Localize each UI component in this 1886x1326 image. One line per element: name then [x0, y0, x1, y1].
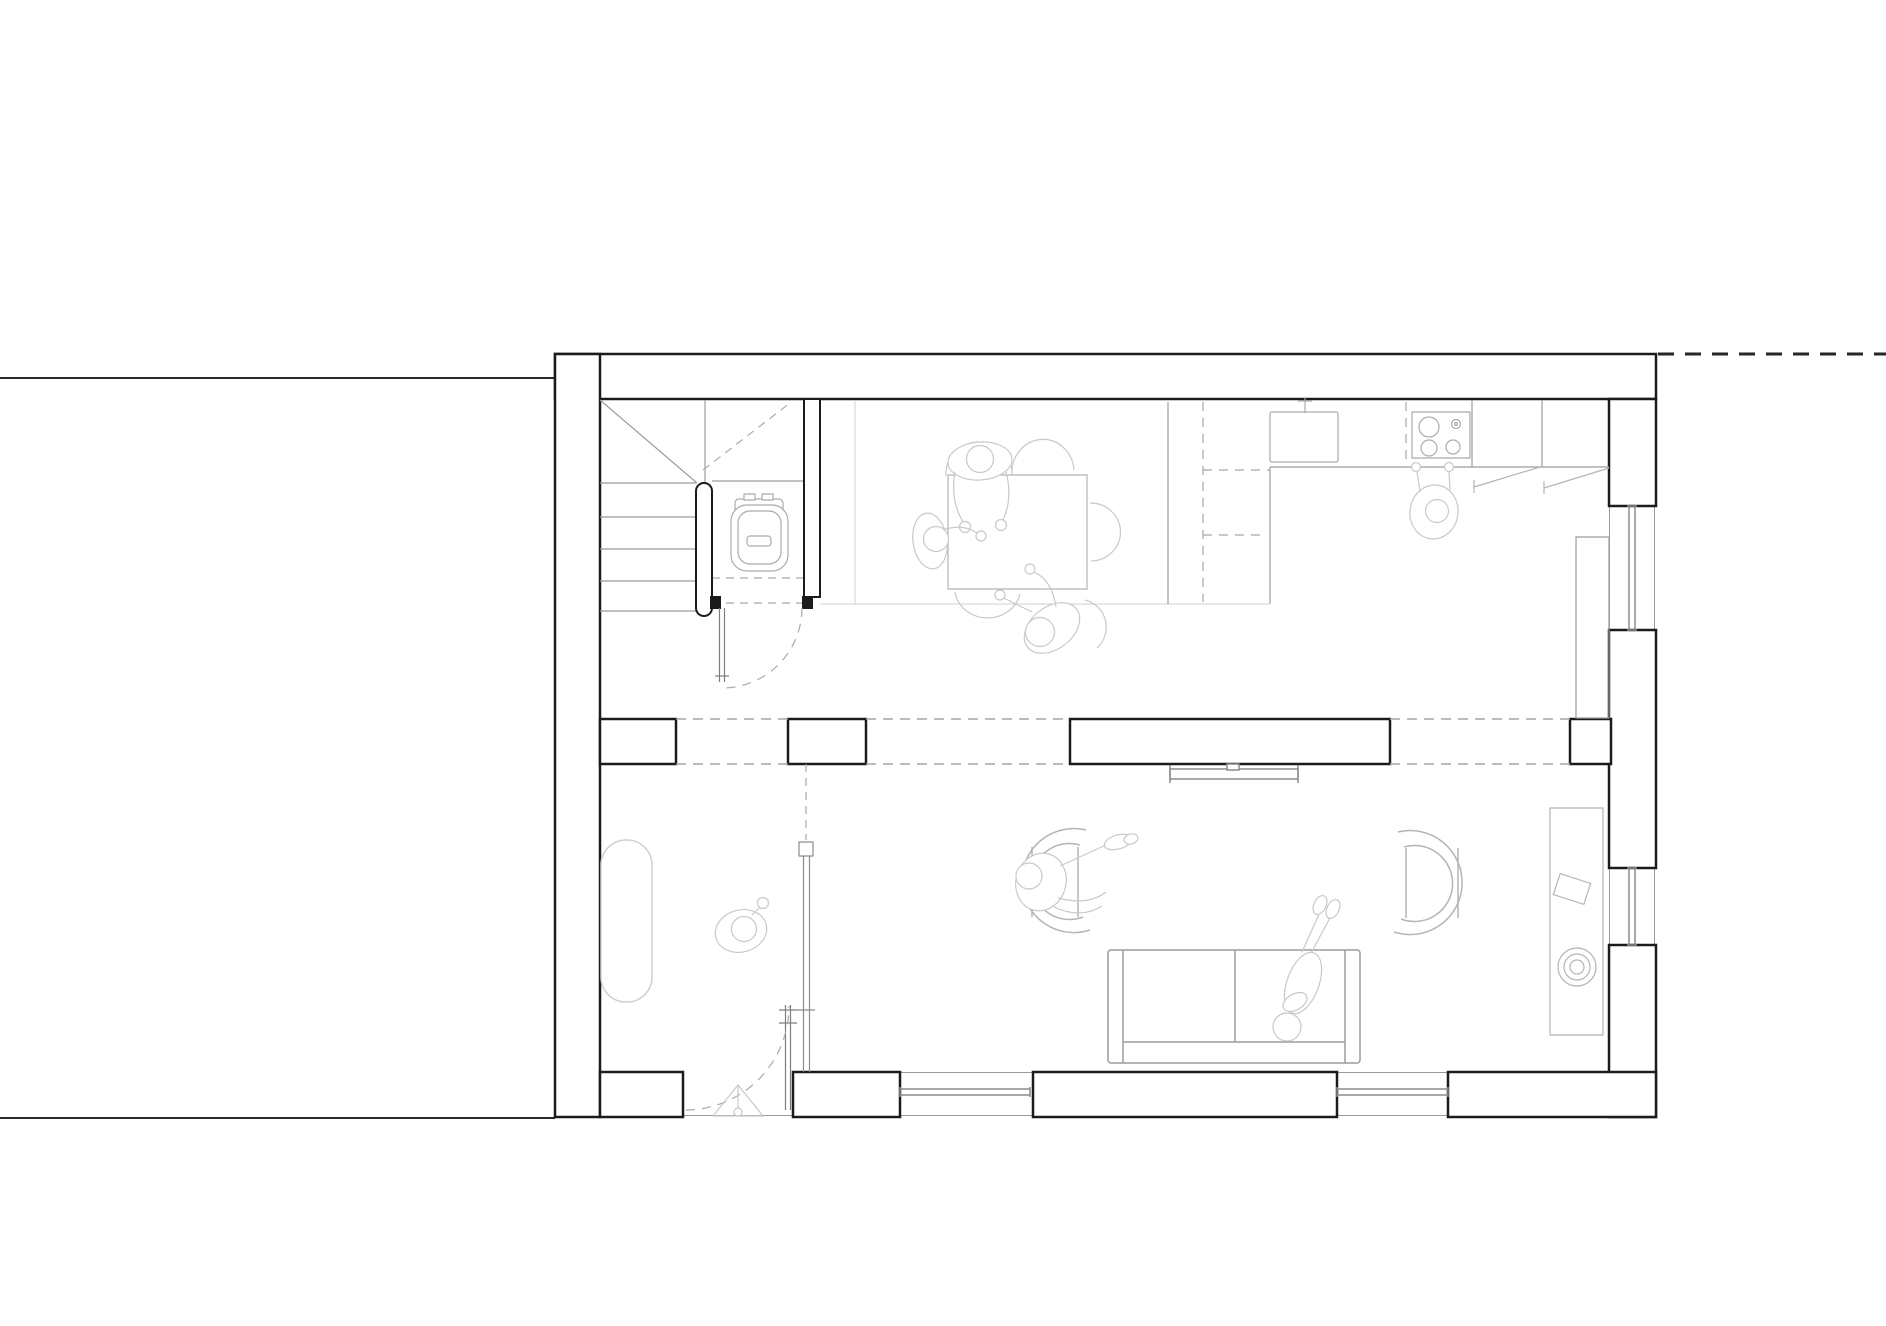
head	[732, 917, 757, 942]
partition-wall	[600, 719, 1611, 764]
floor-plan-sheet	[0, 0, 1886, 1326]
sofa	[1108, 950, 1360, 1063]
armchair-shell-inner	[1401, 846, 1453, 922]
dashed-upper-cabinets	[1203, 402, 1406, 602]
kitchen-counter	[1168, 400, 1609, 718]
wc-side-wall	[804, 399, 820, 597]
person-standing-hall	[710, 898, 771, 959]
partition-pier-2	[788, 719, 866, 764]
stair-newel-wall	[696, 483, 712, 616]
head	[1426, 500, 1449, 523]
wc-door	[715, 608, 802, 688]
wall-pier-right-top	[1609, 399, 1656, 506]
wall-pier-right-middle	[1609, 630, 1656, 868]
toilet-seat-slot	[747, 536, 771, 546]
cooktop	[1412, 412, 1470, 458]
floor-plan-canvas	[0, 0, 1886, 1326]
cabinet-flap-symbols	[1474, 467, 1609, 494]
wc-door-jamb-right	[803, 597, 812, 608]
entry-direction-triangle	[713, 1085, 763, 1116]
chair-bottom-right	[1085, 600, 1106, 648]
stair-winder-diagonal	[600, 400, 697, 483]
hall-bench	[601, 840, 652, 1002]
head	[1273, 1013, 1301, 1041]
wall-pier-bottom-2	[793, 1072, 900, 1117]
chair-bottom	[955, 592, 1020, 618]
glass-screen-post	[799, 842, 813, 856]
entry-door	[686, 1005, 797, 1110]
wall-pier-bottom-left	[600, 1072, 683, 1117]
wc-door-swing	[722, 608, 802, 688]
person-dining-bottom	[995, 564, 1089, 664]
chair-top-right	[1012, 439, 1074, 475]
wall-pier-bottom-3	[1033, 1072, 1337, 1117]
head	[967, 446, 994, 473]
partition-pier-4	[1570, 719, 1611, 764]
toilet-button-right	[762, 494, 773, 500]
head	[1026, 618, 1055, 647]
person-cooking	[1406, 463, 1461, 543]
kitchen-sink	[1270, 398, 1338, 462]
burner-small	[1452, 420, 1461, 429]
head	[1016, 863, 1042, 889]
toilet-button-left	[744, 494, 755, 500]
glass-screen	[797, 842, 815, 1072]
stair-up-line	[703, 403, 790, 470]
wall-pier-bottom-right	[1448, 1072, 1656, 1117]
sideboard-book	[1553, 874, 1590, 905]
armchair-right	[1394, 831, 1462, 935]
sideboard	[1550, 808, 1603, 1035]
partition-pier-3	[1070, 719, 1390, 764]
head	[924, 527, 949, 552]
person-dining-top	[947, 440, 1013, 533]
burner-large	[1419, 417, 1439, 437]
toilet	[731, 494, 788, 571]
tv-center-mark	[1227, 764, 1239, 770]
tall-cabinet	[1576, 537, 1609, 718]
dining-table	[948, 475, 1087, 589]
wall-left-party	[555, 354, 600, 1117]
burner-medium-2	[1446, 440, 1460, 454]
partition-pier-1	[600, 719, 676, 764]
tv-wall-mounted	[1170, 764, 1298, 783]
burner-medium-1	[1421, 440, 1437, 456]
wall-top	[555, 354, 1656, 399]
wc-door-jamb-left	[711, 597, 720, 608]
chair-right	[1090, 503, 1120, 561]
neighbor-party-walls	[0, 378, 555, 1118]
